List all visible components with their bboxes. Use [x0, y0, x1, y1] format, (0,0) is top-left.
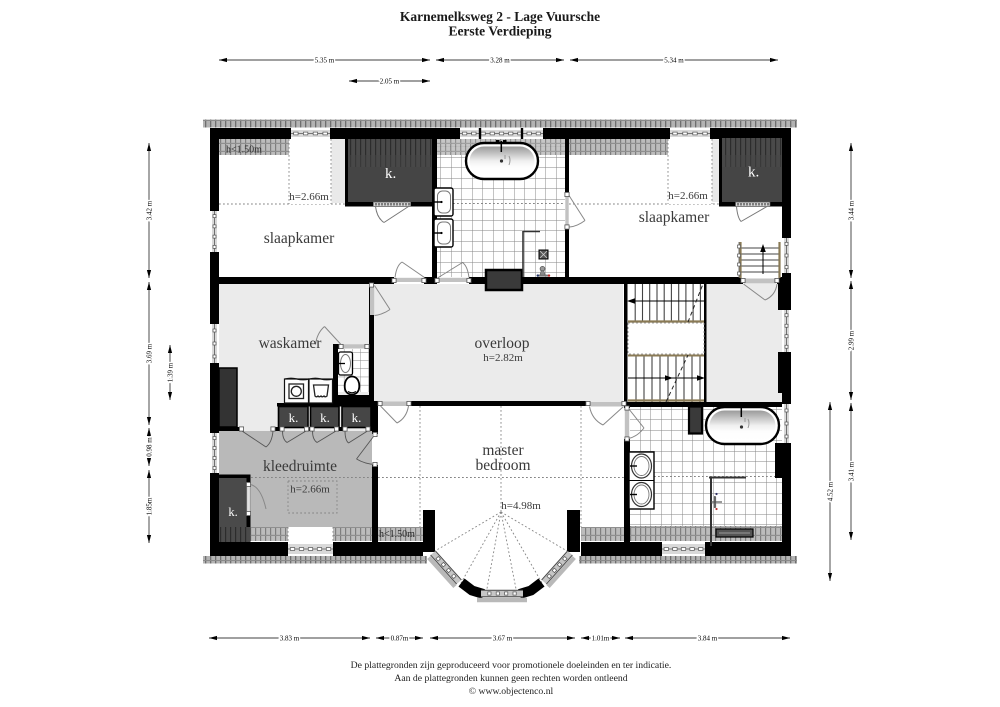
svg-text:© www.objectenco.nl: © www.objectenco.nl [469, 686, 554, 697]
svg-text:h=2.66m: h=2.66m [289, 191, 329, 203]
svg-text:k.: k. [289, 410, 299, 425]
svg-text:h=2.66m: h=2.66m [668, 190, 708, 202]
svg-text:Aan de plattegronden kunnen ge: Aan de plattegronden kunnen geen rechten… [394, 673, 627, 684]
svg-text:overloop: overloop [474, 335, 529, 352]
svg-text:0.87m: 0.87m [391, 634, 409, 642]
svg-text:h<1.50m: h<1.50m [379, 529, 415, 540]
svg-text:3.41 m: 3.41 m [847, 461, 855, 481]
svg-text:slaapkamer: slaapkamer [264, 230, 335, 247]
svg-text:k.: k. [320, 410, 330, 425]
svg-text:h<1.50m: h<1.50m [226, 145, 262, 156]
svg-text:bedroom: bedroom [475, 457, 530, 474]
svg-text:2.99 m: 2.99 m [847, 330, 855, 350]
svg-text:1.01m: 1.01m [592, 634, 610, 642]
svg-text:3.67 m: 3.67 m [493, 634, 513, 642]
svg-text:5.35 m: 5.35 m [315, 56, 335, 64]
svg-text:3.28 m: 3.28 m [490, 56, 510, 64]
svg-text:0.98 m: 0.98 m [145, 437, 153, 457]
svg-text:k.: k. [748, 165, 759, 181]
svg-text:5.34 m: 5.34 m [664, 56, 684, 64]
svg-text:3.83 m: 3.83 m [280, 634, 300, 642]
svg-text:slaapkamer: slaapkamer [639, 209, 710, 226]
svg-text:waskamer: waskamer [259, 335, 323, 352]
svg-text:Karnemelksweg 2 - Lage Vuursch: Karnemelksweg 2 - Lage Vuursche [400, 9, 600, 24]
svg-text:Eerste Verdieping: Eerste Verdieping [448, 24, 551, 39]
svg-text:k.: k. [352, 410, 362, 425]
svg-text:3.69 m: 3.69 m [145, 343, 153, 363]
svg-text:De plattegronden zijn geproduc: De plattegronden zijn geproduceerd voor … [351, 660, 672, 671]
svg-text:3.84 m: 3.84 m [698, 634, 718, 642]
svg-text:1.85m: 1.85m [145, 497, 153, 515]
svg-text:2.05 m: 2.05 m [380, 77, 400, 85]
svg-text:1.39 m: 1.39 m [166, 362, 174, 382]
svg-text:4.52 m: 4.52 m [826, 481, 834, 501]
svg-text:3.44 m: 3.44 m [847, 200, 855, 220]
svg-text:k.: k. [385, 166, 396, 182]
svg-text:3.42 m: 3.42 m [145, 200, 153, 220]
svg-text:h=2.66m: h=2.66m [290, 484, 330, 496]
svg-text:h=4.98m: h=4.98m [501, 500, 541, 512]
svg-text:k.: k. [228, 505, 237, 519]
svg-text:kleedruimte: kleedruimte [263, 458, 337, 475]
svg-text:h=2.82m: h=2.82m [483, 352, 523, 364]
